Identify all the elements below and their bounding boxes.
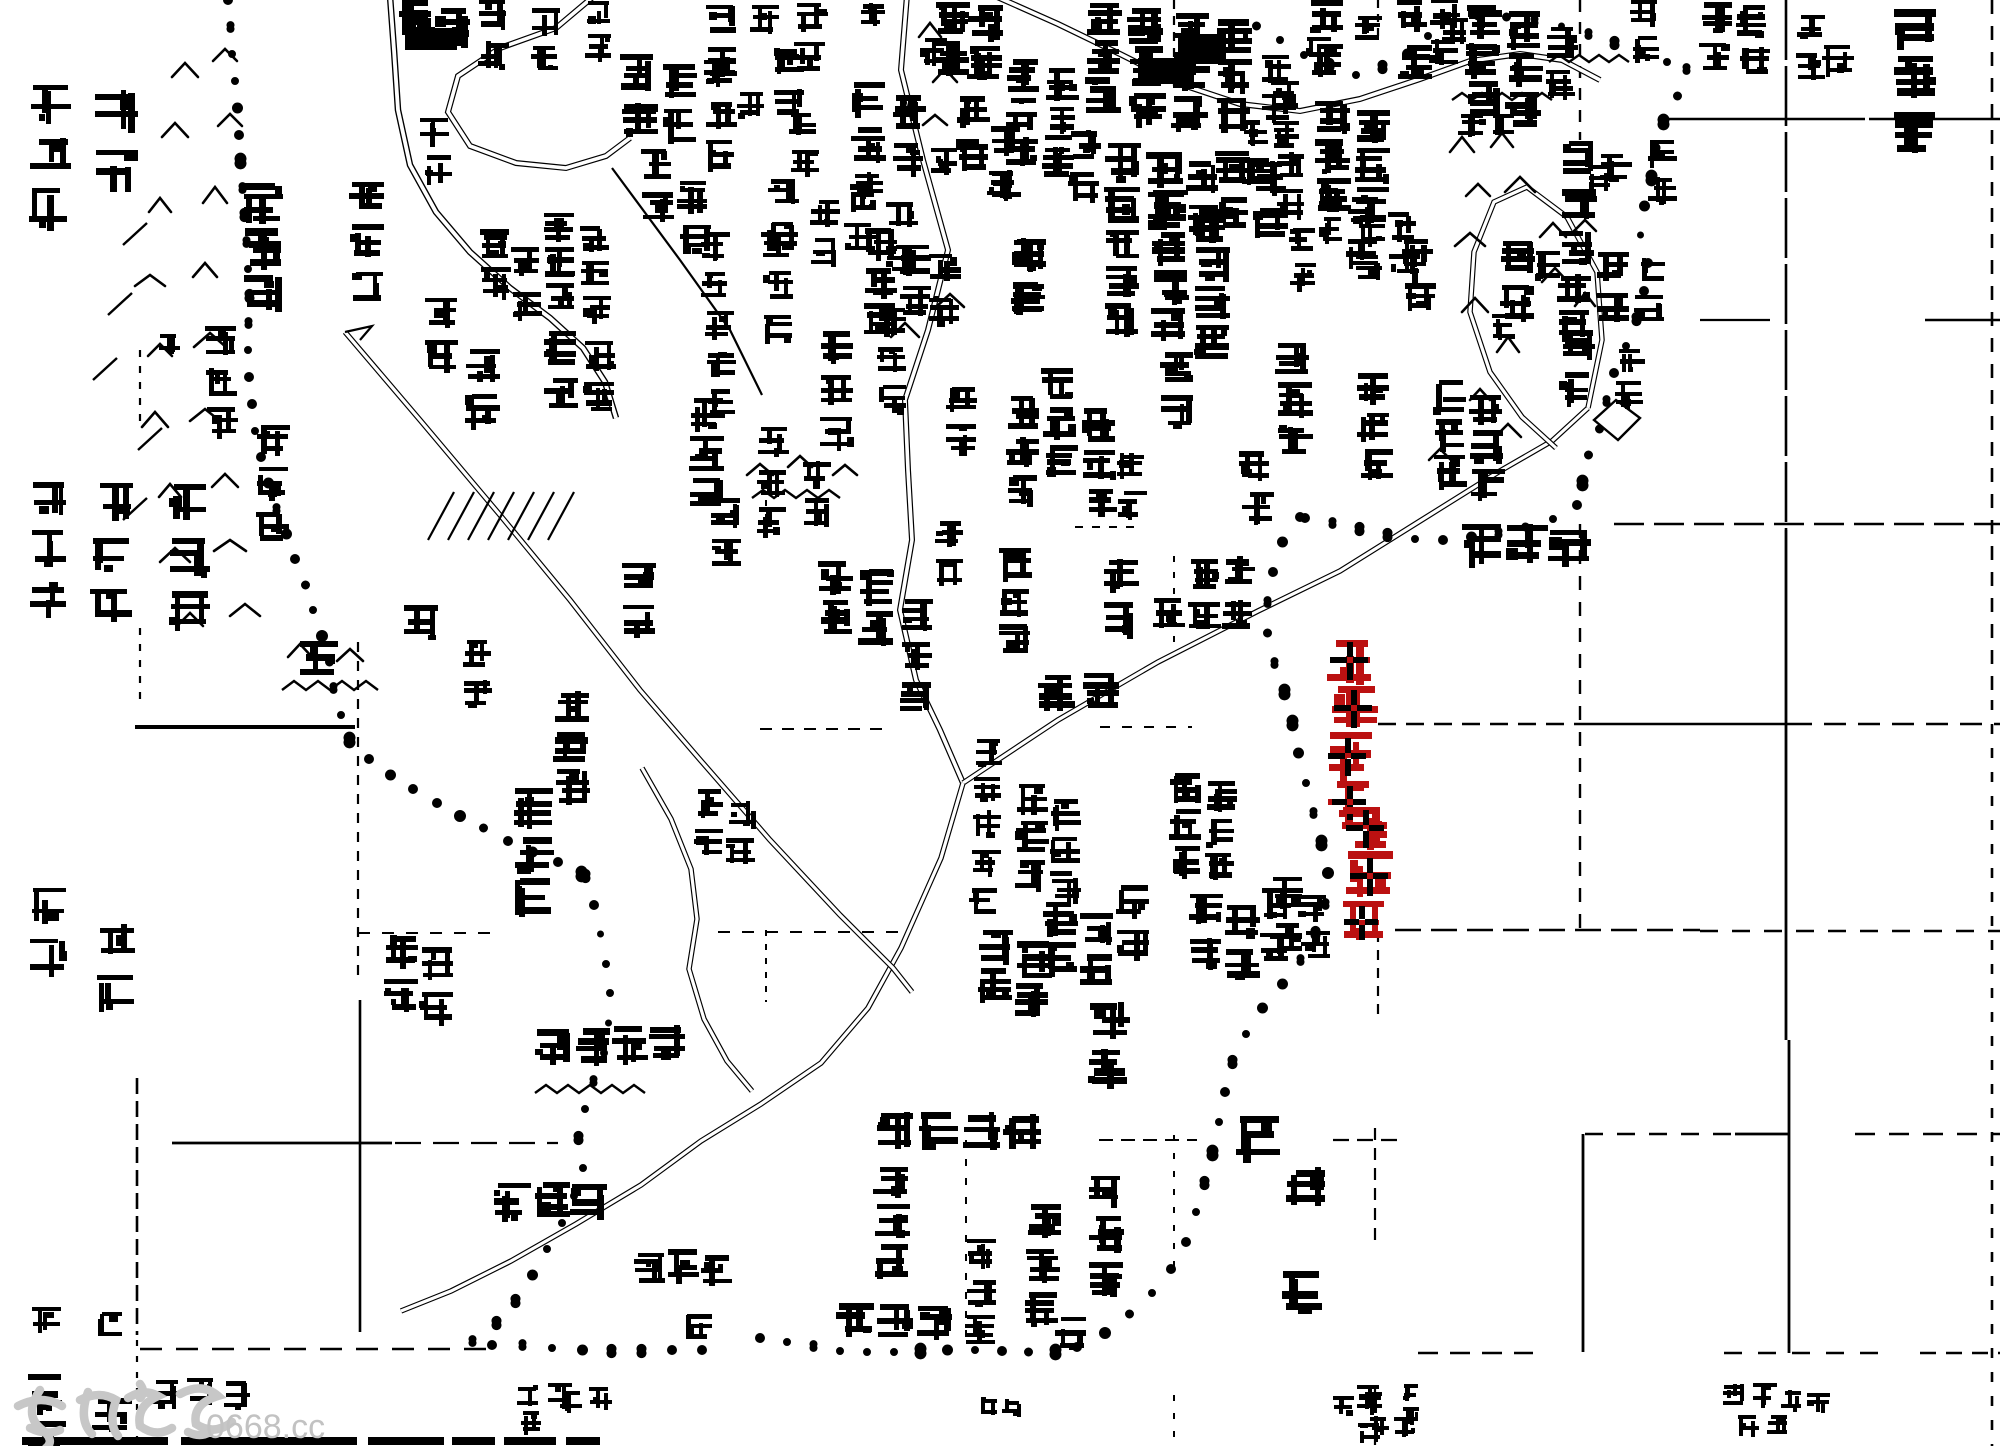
svg-text:0668.cc: 0668.cc — [206, 1408, 325, 1446]
